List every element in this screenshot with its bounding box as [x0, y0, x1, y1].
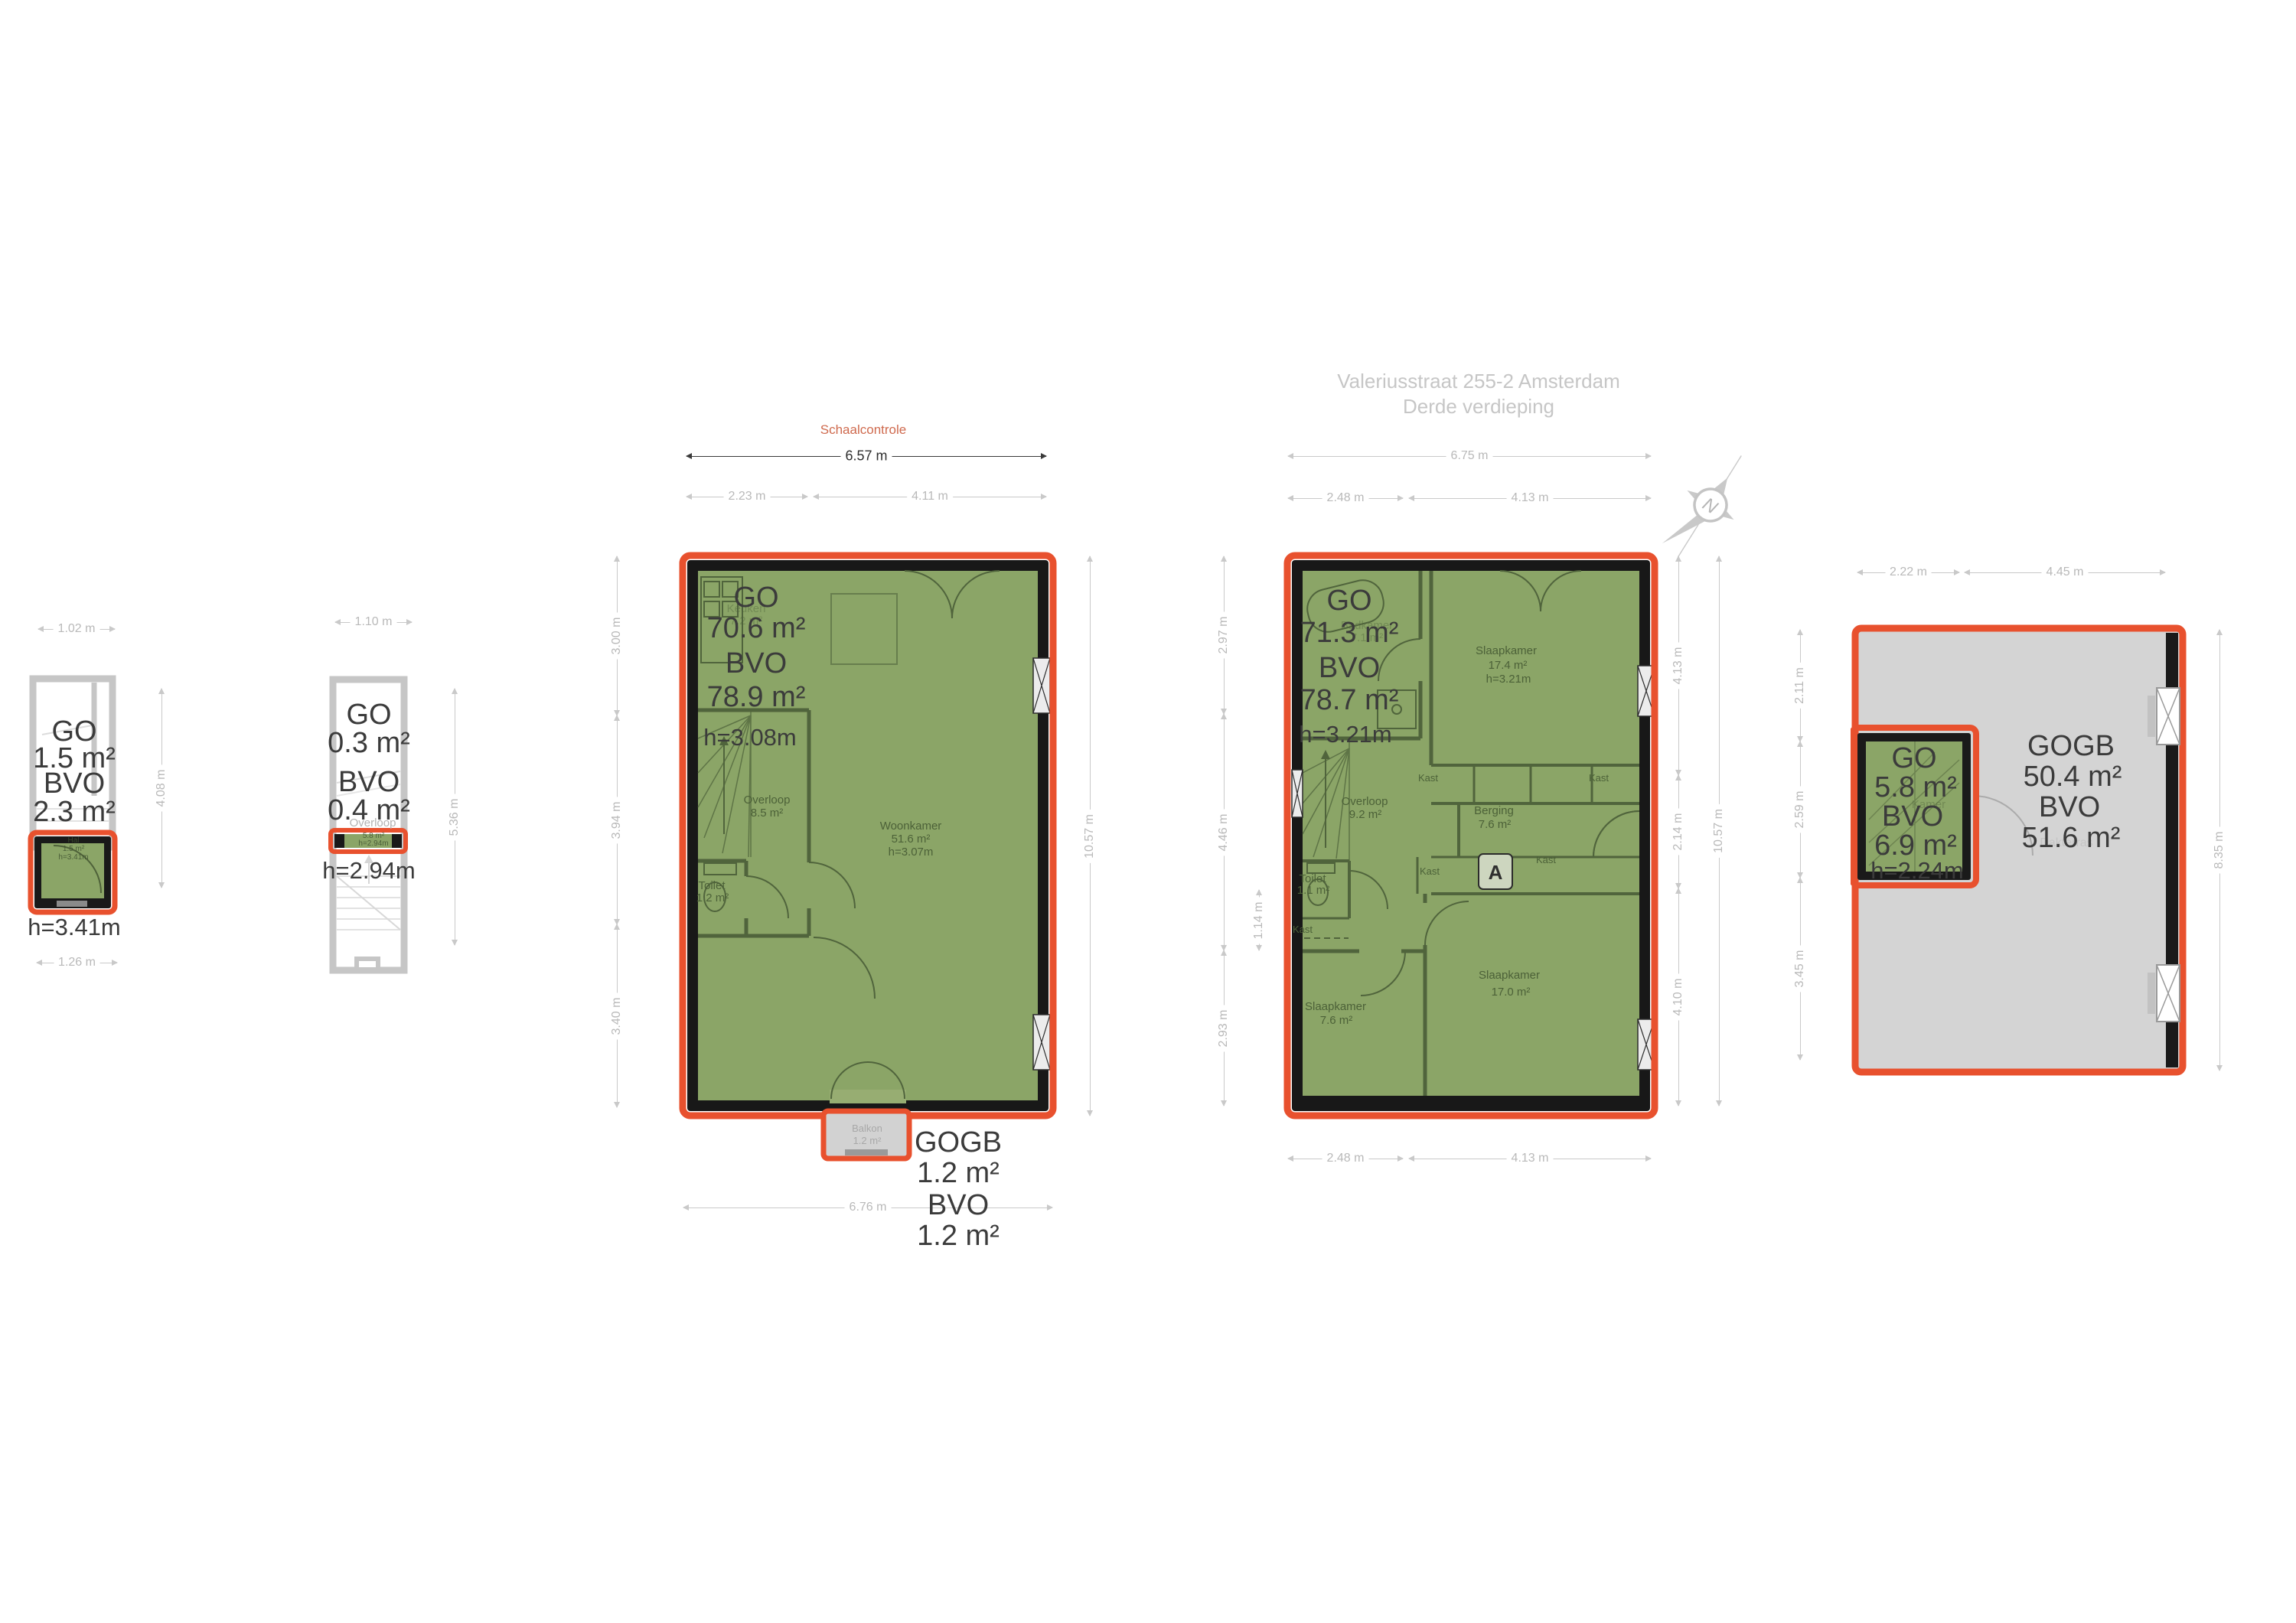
label-dakterras-51-6-m-: 51.6 m² [2022, 823, 2121, 852]
label-derde-verdieping-go: GO [1326, 586, 1371, 615]
label-hal-h-3-41m: h=3.41m [58, 854, 88, 862]
label-derde-verdieping-slaapkamer: Slaapkamer [1476, 645, 1537, 657]
label-woonverdieping-70-6-m-: 70.6 m² [707, 614, 806, 643]
label-woonverdieping-woonkamer: Woonkamer [880, 820, 942, 832]
label-derde-verdieping-berging: Berging [1474, 805, 1514, 816]
label-overloop-0-3-m-: 0.3 m² [328, 728, 410, 758]
floorplan-document: Valeriusstraat 255-2 Amsterdam Derde ver… [0, 0, 2296, 1623]
scale-check-label: Schaalcontrole [820, 422, 906, 438]
label-derde-verdieping-1-1-m-: 1.1 m² [1297, 885, 1330, 896]
label-overloop-bvo: BVO [338, 768, 400, 797]
label-dakterras-bvo: BVO [1882, 802, 1943, 831]
label-derde-verdieping-h-3-21m: h=3.21m [1299, 722, 1392, 746]
label-woonverdieping-78-9-m-: 78.9 m² [707, 683, 806, 712]
label-woonverdieping-h-3-08m: h=3.08m [703, 725, 797, 749]
label-dakterras-6-9-m-: 6.9 m² [1874, 831, 1957, 860]
label-woonverdieping-go: GO [733, 583, 778, 612]
label-woonverdieping-bvo: BVO [928, 1191, 989, 1220]
label-derde-verdieping-71-3-m-: 71.3 m² [1300, 618, 1399, 647]
label-woonverdieping-overloop: Overloop [744, 794, 791, 806]
compass-north-icon: N [1653, 450, 1768, 572]
label-dakterras-gogb: GOGB [2027, 732, 2115, 761]
label-overloop-overloop: Overloop [350, 817, 396, 829]
label-derde-verdieping-7-6-m-: 7.6 m² [1479, 819, 1512, 830]
label-dakterras-h-2-24m: h=2.24m [1870, 859, 1964, 882]
label-derde-verdieping-h-3-21m: h=3.21m [1486, 673, 1531, 685]
label-derde-verdieping-overloop: Overloop [1342, 796, 1388, 807]
label-derde-verdieping-kast: Kast [1418, 773, 1438, 783]
label-woonverdieping-1-2-m-: 1.2 m² [696, 892, 729, 904]
label-derde-verdieping-9-2-m-: 9.2 m² [1349, 809, 1382, 820]
label-hal-2-3-m-: 2.3 m² [33, 797, 116, 826]
label-woonverdieping-h-3-07m: h=3.07m [889, 846, 934, 858]
label-woonverdieping-toilet: Toilet [698, 880, 725, 891]
label-overloop-h-2-94m: h=2.94m [358, 840, 388, 848]
label-dakterras-50-4-m-: 50.4 m² [2024, 762, 2122, 791]
sheet-title-address: Valeriusstraat 255-2 Amsterdam [1337, 369, 1619, 394]
label-woonverdieping-1-2-m-: 1.2 m² [917, 1159, 1000, 1188]
label-derde-verdieping-bvo: BVO [1319, 653, 1380, 683]
label-woonverdieping-balkon: Balkon [852, 1123, 882, 1133]
label-woonverdieping-51-6-m-: 51.6 m² [892, 833, 931, 845]
label-hal-h-3-41m: h=3.41m [28, 915, 121, 939]
label-dakterras-go: GO [1891, 744, 1936, 773]
label-derde-verdieping-kast: Kast [1293, 924, 1313, 934]
label-dakterras-bvo: BVO [2039, 793, 2100, 822]
label-woonverdieping-gogb: GOGB [915, 1128, 1002, 1157]
sheet-title: Valeriusstraat 255-2 Amsterdam Derde ver… [1337, 369, 1619, 419]
label-derde-verdieping-78-7-m-: 78.7 m² [1300, 686, 1399, 715]
label-derde-verdieping-slaapkamer: Slaapkamer [1305, 1001, 1366, 1012]
label-derde-verdieping-slaapkamer: Slaapkamer [1479, 970, 1540, 981]
label-derde-verdieping-17-0-m-: 17.0 m² [1492, 986, 1531, 998]
label-derde-verdieping-kast: Kast [1589, 773, 1609, 783]
label-derde-verdieping-toilet: Toilet [1299, 873, 1326, 885]
label-overloop-h-2-94m: h=2.94m [322, 859, 416, 882]
label-derde-verdieping-7-6-m-: 7.6 m² [1320, 1015, 1353, 1026]
label-derde-verdieping-17-4-m-: 17.4 m² [1489, 660, 1528, 671]
label-woonverdieping-8-5-m-: 8.5 m² [751, 807, 784, 819]
label-hal-1-5-m-: 1.5 m² [63, 846, 84, 853]
label-derde-verdieping-kast: Kast [1420, 866, 1440, 876]
label-derde-verdieping-a: A [1489, 862, 1503, 882]
sheet-title-floor: Derde verdieping [1337, 394, 1619, 419]
label-woonverdieping-1-2-m-: 1.2 m² [853, 1136, 882, 1146]
label-derde-verdieping-kast: Kast [1536, 855, 1556, 865]
label-hal-bvo: BVO [44, 769, 105, 798]
label-woonverdieping-1-2-m-: 1.2 m² [917, 1221, 1000, 1250]
label-overloop-go: GO [346, 700, 391, 729]
label-dakterras-5-8-m-: 5.8 m² [1874, 773, 1957, 802]
label-hal-hal: Hal [67, 837, 79, 845]
label-woonverdieping-bvo: BVO [726, 649, 787, 678]
